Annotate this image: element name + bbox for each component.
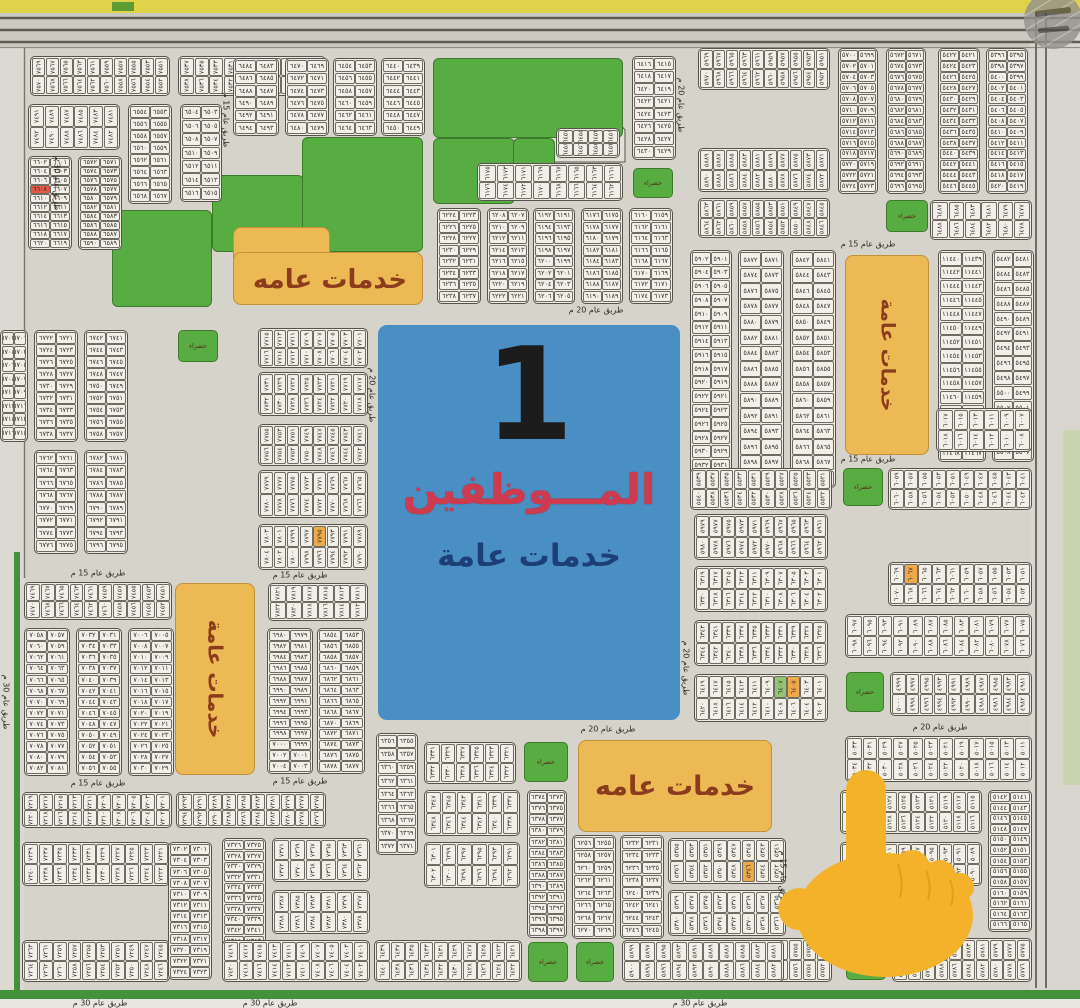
plot-number: ٦٤١٦ bbox=[634, 58, 653, 70]
plot-number: ٧٢٤٧ bbox=[140, 942, 154, 960]
plot-number: ٦٧٦٣ bbox=[56, 465, 75, 477]
plot-number: ٦٥٧١ bbox=[100, 158, 119, 166]
plot-number: ٥٠٩٠ bbox=[967, 864, 980, 883]
plot-number: ٦٣٠٩ bbox=[761, 568, 773, 588]
plot-number: ٦٨٥٧ bbox=[341, 652, 362, 662]
plot-number: ٧٧٩٦ bbox=[313, 547, 326, 567]
plot-number: ٦٢٩٥ bbox=[472, 844, 487, 864]
plot-number: ٥٠١١ bbox=[1015, 738, 1030, 758]
plot-number: ٥٣٧٢ bbox=[727, 913, 741, 933]
plot-number: ٥٤٩٨ bbox=[994, 371, 1012, 385]
plot-number: ٦٨٥٩ bbox=[341, 663, 362, 673]
plot-number: ٦١٨١ bbox=[602, 245, 620, 256]
green-square: خضراء bbox=[846, 672, 884, 712]
plot-number: ٦٠١٧ bbox=[938, 410, 953, 429]
plot-number: ٦٢٢٥ bbox=[459, 222, 478, 233]
plot-number: ٦٤٢٧ bbox=[654, 133, 673, 145]
plot-number: ٦٧٠٥ bbox=[14, 359, 25, 372]
plot-number: ٧٠٣١ bbox=[99, 630, 119, 640]
plot-number: ٦٤٤١ bbox=[403, 73, 422, 85]
plot-number: ٧٨٠٣ bbox=[260, 526, 273, 546]
plot-number: ٦٧٢٦ bbox=[36, 356, 55, 367]
plot-number: ٥٤٠٠ bbox=[988, 72, 1006, 82]
plot-number: ٧٠٠٠ bbox=[269, 740, 289, 750]
plot-number: ١١٤٤٠ bbox=[940, 252, 961, 265]
plot-number: ٦٣١١ bbox=[748, 568, 760, 588]
plot-number: ٥١٦١ bbox=[1010, 898, 1029, 908]
plot-number: ٦٠٤١ bbox=[1016, 470, 1029, 488]
plot-number: ٦٧٠٧ bbox=[14, 373, 25, 386]
plot-number: ٥٤٣٣ bbox=[959, 116, 977, 126]
plot-number: ٦١٦٧ bbox=[651, 256, 670, 267]
plot-number: ٦٤٨٨ bbox=[932, 220, 948, 237]
plot-number: ٥٨٨٥ bbox=[726, 150, 738, 169]
plot-number: ٦٠٤٥ bbox=[988, 470, 1001, 488]
plot-number: ٥١٤٤ bbox=[990, 803, 1009, 813]
public-services-label: خدمات عامه bbox=[253, 265, 407, 295]
plot-number: ٦٧١٤ bbox=[2, 413, 13, 426]
plot-block: ٤٩٨١٤٩٨٢٤٩٨٣٤٩٨٤٤٩٨٥٤٩٨٦٤٩٨٧٤٩٨٨٤٩٨٩٤٩٩٠… bbox=[890, 672, 1032, 716]
plot-block: ٦١٩٢٦١٩١٦١٩٤٦١٩٣٦١٩٦٦١٩٥٦١٩٨٦١٩٧٦٢٠٠٦١٩٩… bbox=[533, 208, 575, 304]
plot-number: ١١٤٤٨ bbox=[940, 308, 961, 321]
plot-number: ٦١٦٤ bbox=[586, 182, 603, 198]
plot-number: ٥٨٥٧ bbox=[739, 200, 751, 217]
plot-number: ٧٠٥٩ bbox=[47, 641, 67, 651]
road-label: طريق عام 15 م bbox=[273, 777, 328, 786]
plot-number: ٥٧٨٦ bbox=[949, 960, 962, 979]
plot-number: ٥٣٤٤ bbox=[756, 861, 770, 881]
plot-number: ٦٣٧٣ bbox=[547, 792, 564, 802]
plot-block: ٥٧٧٥٥٧٧٦٥٧٧٧٥٧٧٨٥٧٧٩٥٧٨٠٥٧٨١٥٧٨٢٥٧٨٣٥٧٨٤… bbox=[892, 938, 1032, 982]
plot-block: ٧٠٣٢٧٠٣١٧٠٣٤٧٠٣٣٧٠٣٦٧٠٣٥٧٠٣٨٧٠٣٧٧٠٤٠٧٠٣٩… bbox=[76, 628, 122, 776]
plot-block: ٦٣٥٦٦٣٥٥٦٣٥٨٦٣٥٧٦٣٦٠٦٣٥٩٦٣٦٢٦٣٦١٦٣٦٤٦٣٦٣… bbox=[376, 733, 418, 855]
plot-number: ٥٩٥٩ bbox=[764, 50, 776, 68]
plot-number: ٧٠٧٠ bbox=[26, 697, 46, 707]
plot-number: ٥٣٦٩ bbox=[742, 892, 756, 912]
plot-number: ٦٣٨٦ bbox=[529, 859, 546, 869]
road-label: طريق عام 20 م bbox=[581, 725, 636, 734]
plot-number: ٧٧٥٦ bbox=[260, 445, 273, 463]
plot-number: ٧٢٥١ bbox=[111, 942, 125, 960]
district-number: 1 bbox=[484, 329, 573, 463]
plot-number: ٦١٧٩ bbox=[602, 233, 620, 244]
plot-number: ٥٦٧٢ bbox=[888, 50, 905, 60]
plot-number: ٥٧١٣ bbox=[858, 127, 875, 137]
plot-number: ٦٤١٠ bbox=[761, 698, 773, 719]
plot-block: ٧٧٤١٧٧٤٢٧٧٤٣٧٧٤٤٧٧٤٥٧٧٤٦٧٧٤٧٧٧٤٨٧٧٤٩٧٧٥٠… bbox=[258, 424, 368, 466]
plot-block: ٥٨٧٢٥٨٧١٥٨٧٤٥٨٧٣٥٨٧٦٥٨٧٥٥٨٧٨٥٨٧٧٥٨٨٠٥٨٧٩… bbox=[738, 250, 784, 488]
plot-number: ٥٤٤٣ bbox=[959, 170, 977, 180]
plot-number: ٥٧٢٤ bbox=[840, 181, 857, 191]
plot-number: ٧٢١٤ bbox=[68, 810, 82, 825]
plot-number: ٦١٧٧ bbox=[602, 222, 620, 233]
plot-number: ٦٥٠٤ bbox=[182, 106, 200, 119]
plot-number: ٥٩٦٠ bbox=[764, 69, 776, 87]
plot-number: ٥٨٤٦ bbox=[816, 218, 828, 235]
plot-number: ٥٧٧٨ bbox=[1003, 960, 1016, 979]
plot-number: ٦٧٨٧ bbox=[106, 490, 125, 502]
plot-number: ٦١٧٤ bbox=[631, 291, 650, 302]
plot-number: ٥٣٧٦ bbox=[699, 913, 713, 933]
plot-number: ٧٢١٦ bbox=[54, 810, 68, 825]
plot-number: ٦٥٦٧ bbox=[150, 190, 169, 201]
plot-number: ٥٥٣٧ bbox=[706, 470, 719, 488]
plot-number: ٦٣٣٨ bbox=[503, 813, 518, 833]
plot-number: ٦٧٦٢ bbox=[36, 452, 55, 464]
plot-number: ٥٨٦١ bbox=[813, 408, 833, 423]
plot-number: ٧٠٧٧ bbox=[47, 741, 67, 751]
plot-number: ٧٠٢٨ bbox=[130, 752, 150, 762]
plot-number: ٥٨٨٢ bbox=[752, 170, 764, 189]
plot-number: ٥٤٩٤ bbox=[994, 341, 1012, 355]
plot-number: ٧٢٢٦ bbox=[125, 864, 139, 883]
plot-number: ٥٩٢١ bbox=[711, 390, 729, 403]
plot-number: ٥٠٩٧ bbox=[911, 844, 924, 863]
plot-number: ٦٥١٤ bbox=[182, 173, 200, 186]
plot-number: ٥١٢٧ bbox=[884, 792, 897, 811]
plot-number: ٦٣٥٦ bbox=[378, 735, 396, 748]
plot-number: ٦٤٣٣ bbox=[420, 942, 434, 960]
plot-number: ٧٢١٢ bbox=[83, 810, 97, 825]
plot-number: ٦٢١٧ bbox=[508, 268, 526, 279]
plot-number: ٧٣٣٤ bbox=[224, 883, 243, 893]
plot-number: ٦٣٢٢ bbox=[500, 763, 514, 781]
plot-number: ٦٩٩٦ bbox=[269, 718, 289, 728]
plot-number: ٥٧٠٨ bbox=[840, 94, 857, 104]
plot-number: ٦٣٤٥ bbox=[442, 792, 457, 812]
plot-number: ٧٧٩٤ bbox=[327, 547, 340, 567]
plot-number: ٦٤٢٩ bbox=[654, 146, 673, 158]
plot-number: ٦٠٩٢ bbox=[893, 636, 908, 655]
plot-number: ٦٠٦٠ bbox=[890, 489, 903, 507]
plot-number: ٥٩٧١ bbox=[748, 516, 760, 536]
plot-number: ٥٣٥٦ bbox=[670, 861, 684, 881]
plot-number: ٧٢٥٢ bbox=[111, 961, 125, 979]
plot-number: ٥٦٨٠ bbox=[888, 94, 905, 104]
plot-number: ٥٨٨٨ bbox=[740, 377, 760, 392]
plot-number: ٥٦٨٦ bbox=[888, 127, 905, 137]
plot-number: ٥١٦٠ bbox=[990, 888, 1009, 898]
plot-number: ٥٦٧٥ bbox=[906, 72, 923, 82]
plot-number: ٦٢٠٠ bbox=[535, 256, 553, 267]
plot-block: ٦٥٠٤٦٥٠٣٦٥٠٦٦٥٠٥٦٥٠٨٦٥٠٧٦٥١٠٦٥٠٩٦٥١٢٦٥١١… bbox=[180, 104, 222, 202]
plot-number: ٥٦٩٠ bbox=[888, 149, 905, 159]
plot-number: ٥٨٧٩ bbox=[761, 315, 781, 330]
plot-number: ٥٣٧٣ bbox=[713, 892, 727, 912]
plot-number: ٦٤٣٧ bbox=[391, 942, 405, 960]
plot-number: ٥٩٦٣ bbox=[800, 516, 812, 536]
plot-number: ٦٢١١ bbox=[508, 233, 526, 244]
plot-number: ٦٠٦٦ bbox=[918, 584, 931, 603]
plot-number: ٥٥٢٣ bbox=[803, 470, 816, 488]
plot-number: ٧٤٦٢ bbox=[84, 601, 98, 617]
plot-number: ٧٤٩١ bbox=[30, 106, 44, 126]
plot-number: ٥٥٢١ bbox=[817, 470, 830, 488]
plot-number: ٧٥٥٤ bbox=[141, 76, 154, 93]
plot-number: ٥٨٩٤ bbox=[672, 961, 687, 979]
plot-number: ٦٣٧٦ bbox=[529, 803, 546, 813]
plot-number: ٥٧٢١ bbox=[858, 170, 875, 180]
plot-number: ٦١٩٤ bbox=[535, 222, 553, 233]
plot-number: ٧٧٦٧ bbox=[340, 472, 353, 493]
plot-number: ٦٣٤٢ bbox=[472, 813, 487, 833]
plot-number: ٥٦٧٦ bbox=[888, 72, 905, 82]
plot-number: ٤٩٩٩ bbox=[892, 674, 905, 693]
plot-block: ٥٨٤٢٥٨٤١٥٨٤٤٥٨٤٣٥٨٤٦٥٨٤٥٥٨٤٨٥٨٤٧٥٨٥٠٥٨٤٩… bbox=[790, 250, 836, 488]
plot-number: ٦٢٣١ bbox=[642, 837, 661, 849]
plot-number: ٧٠٦١ bbox=[47, 652, 67, 662]
plot-number: ٧٠٣٠ bbox=[130, 763, 150, 773]
plot-number: ٦٧٩٣ bbox=[106, 527, 125, 539]
plot-number: ٥٨٤٧ bbox=[813, 299, 833, 314]
plot-number: ٧٣٢٧ bbox=[244, 851, 263, 861]
plot-number: ٦٣٩٧ bbox=[547, 925, 564, 935]
plot-number: ٧٥٣٦ bbox=[195, 76, 209, 93]
plot-number: ٦٢٢٣ bbox=[459, 210, 478, 221]
plot-number: ٥٩٦٦ bbox=[787, 537, 799, 557]
highlighted-plot-number: ٦٦٠٨ bbox=[30, 185, 49, 193]
plot-number: ٦٣٠٤ bbox=[800, 589, 812, 609]
plot-block: ٧٣٠٢٧٣٠١٧٣٠٤٧٣٠٣٧٣٠٦٧٣٠٥٧٣٠٨٧٣٠٧٧٣١٠٧٣٠٩… bbox=[168, 842, 212, 980]
plot-number: ٧٢٥٤ bbox=[96, 961, 110, 979]
plot-number: ٧٧٧٤ bbox=[300, 494, 313, 515]
plot-number: ٥١٠٣ bbox=[870, 844, 883, 863]
plot-number: ٥٥٣٦ bbox=[720, 489, 733, 507]
plot-number: ٦٢٣٢ bbox=[622, 837, 641, 849]
plot-number: ٦٧٦١ bbox=[56, 452, 75, 464]
plot-number: ٦٤٣٥ bbox=[405, 942, 419, 960]
plot-number: ٥٤٩٦ bbox=[994, 356, 1012, 370]
plot-number: ٥١٤٧ bbox=[1010, 824, 1029, 834]
plot-number: ٥٤٢٩ bbox=[959, 94, 977, 104]
plot-number: ٥١٠٥ bbox=[856, 844, 869, 863]
plot-number: ٥٨٦٤ bbox=[792, 424, 812, 439]
road-label: طريق عام 15 م bbox=[841, 240, 896, 249]
green-area bbox=[433, 58, 623, 138]
plot-number: ٥٠٩٢ bbox=[953, 864, 966, 883]
plot-number: ٤٩٩٤ bbox=[934, 694, 947, 713]
plot-number: ٧٠٦٣ bbox=[47, 664, 67, 674]
plot-number: ٥٧٧٥ bbox=[1017, 940, 1030, 959]
plot-number: ٧٣٠١ bbox=[190, 844, 209, 855]
plot-number: ٧٢١٥ bbox=[54, 794, 68, 809]
plot-number: ٧٢٣٥ bbox=[53, 844, 67, 863]
plot-number: ٥٩٧٠ bbox=[761, 537, 773, 557]
plot-number: ٥٩٢٣ bbox=[711, 404, 729, 417]
plot-number: ٧٠١٢ bbox=[130, 664, 150, 674]
plot-number: ٦٣٣٥ bbox=[748, 622, 760, 642]
plot-number: ٦٩٨٩ bbox=[290, 685, 310, 695]
plot-block: ٧٤٠١٧٤٠٢٧٤٠٣٧٤٠٤٧٤٠٥٧٤٠٦٧٤٠٧٧٤٠٨٧٤٠٩٧٤١٠… bbox=[222, 940, 370, 982]
plot-number: ٧٠٦٩ bbox=[47, 697, 67, 707]
plot-number: ٥٧٠٦ bbox=[840, 83, 857, 93]
plot-number: ٦٣٤٤ bbox=[457, 813, 472, 833]
plot-number: ٦٠٨٤ bbox=[954, 636, 969, 655]
plot-number: ٥٧٠٩ bbox=[858, 105, 875, 115]
plot-number: ٦١٩٨ bbox=[535, 245, 553, 256]
plot-number: ٥٤٢٦ bbox=[940, 72, 958, 82]
plot-number: ٥٧١٨ bbox=[840, 149, 857, 159]
plot-block: ٦٢٥٦٦٢٥٥٦٢٥٨٦٢٥٧٦٢٦٠٦٢٥٩٦٢٦٢٦٢٦١٦٢٦٤٦٢٦٣… bbox=[572, 835, 616, 939]
plot-number: ٥٨٦١ bbox=[713, 200, 725, 217]
plot-number: ٦٣٨٢ bbox=[529, 837, 546, 847]
plot-number: ٦١٦٨ bbox=[631, 256, 650, 267]
plot-block: ٦١٦٠٦١٥٩٦١٦٢٦١٦١٦١٦٤٦١٦٣٦١٦٦٦١٦٥٦١٦٨٦١٦٧… bbox=[629, 208, 673, 304]
plot-number: ٦٣٢٥ bbox=[470, 744, 484, 762]
plot-number: ٥٤٨٨ bbox=[994, 297, 1012, 311]
plot-number: ٥٩٥٧ bbox=[777, 50, 789, 68]
plot-number: ٦٤٣٩ bbox=[403, 60, 422, 72]
plot-number: ٦٣٣٧ bbox=[735, 622, 747, 642]
plot-number: ٧٠٥٨ bbox=[26, 630, 46, 640]
plot-number: ٦٦١٦ bbox=[30, 221, 49, 229]
plot-number: ٧٠٥٤ bbox=[78, 752, 98, 762]
plot-number: ٦٤٤٨ bbox=[383, 110, 402, 122]
plot-number: ٥٣٧٨ bbox=[685, 913, 699, 933]
plot-number: ٦٤٣٩ bbox=[376, 942, 390, 960]
plot-number: ٦٥٦٤ bbox=[130, 166, 149, 177]
plot-number: ٧٨١٤ bbox=[334, 602, 349, 618]
plot-number: ٧٣٦٧ bbox=[306, 840, 321, 859]
plot-number: ٥٤٤١ bbox=[959, 160, 977, 170]
plot-number: ٥٦٧٨ bbox=[888, 83, 905, 93]
plot-number: ٥١٦٣ bbox=[1010, 909, 1029, 919]
plot-number: ٥٧٥٢ bbox=[817, 960, 830, 979]
plot-number: ٧٢٣٦ bbox=[53, 864, 67, 883]
plot-block: ٦٧٠٢٦٧٠١٦٧٠٤٦٧٠٣٦٧٠٦٦٧٠٥٦٧٠٨٦٧٠٧٦٧١٠٦٧٠٩… bbox=[0, 330, 28, 442]
plot-number: ٥٧٨٧ bbox=[935, 940, 948, 959]
plot-number: ٦٤٦٣ bbox=[355, 122, 374, 134]
plot-number: ٥٧٨٩ bbox=[922, 940, 935, 959]
plot-number: ٥٩٥١ bbox=[816, 50, 828, 68]
plot-number: ٥٤٣٢ bbox=[940, 105, 958, 115]
plot-number: ٦٢٠٦ bbox=[535, 291, 553, 302]
plot-number: ٥٤١٩ bbox=[1007, 181, 1025, 191]
plot-number: ٦٨٧٠ bbox=[319, 718, 340, 728]
plot-number: ٦٠٦٨ bbox=[904, 584, 917, 603]
road-label: طريق عام 15 م bbox=[841, 455, 896, 464]
plot-number: ٥٤١٤ bbox=[988, 149, 1006, 159]
plot-number: ٧٥٦٦ bbox=[60, 76, 73, 93]
plot-number: ٧٤٥١ bbox=[156, 584, 170, 600]
plot-number: ٧٠٧٥ bbox=[47, 730, 67, 740]
plot-number: ٥٨٨٣ bbox=[761, 346, 781, 361]
plot-number: ٦٣٨٧ bbox=[547, 870, 564, 880]
plot-number: ٥٩٠٩ bbox=[711, 307, 729, 320]
plot-number: ٧٠٣٨ bbox=[78, 664, 98, 674]
plot-number: ٥٨٧٥ bbox=[761, 283, 781, 298]
plot-number: ٧٣١٤ bbox=[170, 911, 189, 922]
plot-number: ٦٠٩٥ bbox=[863, 616, 878, 635]
plot-number: ٦٧١٦ bbox=[2, 427, 13, 440]
plot-number: ٦١٦٢ bbox=[604, 182, 621, 198]
plot-number: ٥١٣٢ bbox=[856, 812, 869, 831]
plot-block: ٧٤٥١٧٤٥٢٧٤٥٣٧٤٥٤٧٤٥٥٧٤٥٦٧٤٥٧٧٤٥٨٧٤٥٩٧٤٦٠… bbox=[24, 582, 172, 620]
plot-number: ٥٠٠٠ bbox=[892, 694, 905, 713]
plot-number: ٦٦٢٠ bbox=[30, 239, 49, 247]
plot-block: ٦٠٤١٦٠٤٢٦٠٤٣٦٠٤٤٦٠٤٥٦٠٤٦٦٠٤٧٦٠٤٨٦٠٤٩٦٠٥٠… bbox=[888, 468, 1032, 510]
plot-number: ٥١١٧ bbox=[953, 792, 966, 811]
plot-number: ٧٧٩٢ bbox=[340, 547, 353, 567]
plot-number: ٦٣٢٧ bbox=[800, 622, 812, 642]
plot-number: ٧٤٩٠ bbox=[45, 127, 59, 147]
plot-number: ٥١٤٩ bbox=[1010, 835, 1029, 845]
plot-number: ٥٩٧٠ bbox=[700, 69, 712, 87]
plot-number: ٦٤٧٩ bbox=[998, 202, 1014, 219]
plot-number: ٦٦١٨ bbox=[30, 230, 49, 238]
plot-number: ٦٤١٥ bbox=[722, 676, 734, 697]
plot-number: ٥٦٧٣ bbox=[906, 61, 923, 71]
plot-number: ٦٤٠٩ bbox=[761, 676, 773, 697]
plot-number: ٦٧٨١ bbox=[106, 452, 125, 464]
plot-number: ٧٣٠٦ bbox=[170, 867, 189, 878]
plot-number: ٧٢٦٣ bbox=[24, 942, 38, 960]
plot-number: ٦٣٥٨ bbox=[378, 748, 396, 761]
plot-number: ٦١٩٥ bbox=[554, 233, 572, 244]
plot-number: ٥٨٩٨ bbox=[640, 961, 655, 979]
plot-block: ٧٢٤٥٧٢٤٦٧٢٤٧٧٢٤٨٧٢٤٩٧٢٥٠٧٢٥١٧٢٥٢٧٢٥٣٧٢٥٤… bbox=[22, 940, 170, 982]
plot-number: ٦٧٦٧ bbox=[56, 490, 75, 502]
plot-number: ٧٠٣٥ bbox=[99, 652, 119, 662]
plot-number: ٦٥٥٤ bbox=[130, 106, 149, 117]
plot-number: ٦٤٢٢ bbox=[634, 96, 653, 108]
plot-number: ٦٦٠٢ bbox=[30, 158, 49, 166]
plot-number: ٦٤١٨ bbox=[709, 698, 721, 719]
plot-number: ٥٨٩٣ bbox=[672, 942, 687, 960]
plot-number: ٥٨٨٢ bbox=[767, 961, 782, 979]
plot-number: ٦٣٠٢ bbox=[426, 865, 441, 885]
plot-number: ٧٠٧٣ bbox=[47, 719, 67, 729]
plot-number: ٦٥١٢ bbox=[182, 160, 200, 173]
plot-number: ٦٨٦٩ bbox=[341, 718, 362, 728]
plot-number: ٧٢١٠ bbox=[97, 810, 111, 825]
plot-number: ٦٠٥٢ bbox=[1016, 584, 1029, 603]
plot-number: ٦٧٦٨ bbox=[36, 490, 55, 502]
plot-number: ٦٢٤٢ bbox=[622, 900, 641, 912]
plot-number: ٦٠١٠ bbox=[1000, 430, 1015, 449]
plot-block: ٦٤٢١٦٤٢٢٦٤٢٣٦٤٢٤٦٤٢٥٦٤٢٦٦٤٢٧٦٤٢٨٦٤٢٩٦٤٣٠… bbox=[374, 940, 522, 982]
plot-block: ٥٨٤٥٥٨٤٦٥٨٤٧٥٨٤٨٥٨٤٩٥٨٥٠٥٨٥١٥٨٥٢٥٨٥٣٥٨٥٤… bbox=[698, 198, 830, 238]
plot-block: ٦١٧٦٦١٧٥٦١٧٨٦١٧٧٦١٨٠٦١٧٩٦١٨٢٦١٨١٦١٨٤٦١٨٣… bbox=[581, 208, 623, 304]
plot-number: ٧٧٥٠ bbox=[300, 445, 313, 463]
plot-number: ٦٠٧٨ bbox=[1000, 636, 1015, 655]
plot-number: ٦٩٩٤ bbox=[269, 707, 289, 717]
plot-number: ٦٩٨٤ bbox=[269, 652, 289, 662]
plot-number: ٦٩٩٨ bbox=[269, 729, 289, 739]
plot-number: ٧٧٠٨ bbox=[313, 348, 326, 365]
plot-number: ٧٢١١ bbox=[83, 794, 97, 809]
plot-number: ٧٣٧١ bbox=[274, 840, 289, 859]
plot-number: ٧٧٤٣ bbox=[340, 426, 353, 444]
plot-number: ٧٤١٨ bbox=[239, 961, 253, 979]
plot-number: ٦٣٣١ bbox=[774, 622, 786, 642]
plot-number: ٦١٧٣ bbox=[651, 291, 670, 302]
plot-number: ٦٤٤٩ bbox=[403, 122, 422, 134]
plot-number: ٧٣٧٩ bbox=[337, 892, 352, 911]
plot-number: ٧٧٤٧ bbox=[313, 426, 326, 444]
plot-number: ٥١٠٨ bbox=[842, 864, 855, 883]
plot-number: ٥١٥٨ bbox=[990, 877, 1009, 887]
plot-number: ٦٠٧٥ bbox=[1015, 616, 1030, 635]
plot-number: ٧٣٤٢ bbox=[224, 925, 243, 935]
plot-number: ٥٧٨٣ bbox=[962, 940, 975, 959]
plot-number: ٧٣٦٩ bbox=[290, 840, 305, 859]
plot-number: ٦١٦٣ bbox=[651, 233, 670, 244]
plot-number: ٧٧٧٩ bbox=[260, 472, 273, 493]
plot-number: ٧٧٦٩ bbox=[327, 472, 340, 493]
highlighted-plot-number: ٦٤٠٥ bbox=[787, 676, 799, 697]
plot-number: ٦٢٤١ bbox=[642, 900, 661, 912]
